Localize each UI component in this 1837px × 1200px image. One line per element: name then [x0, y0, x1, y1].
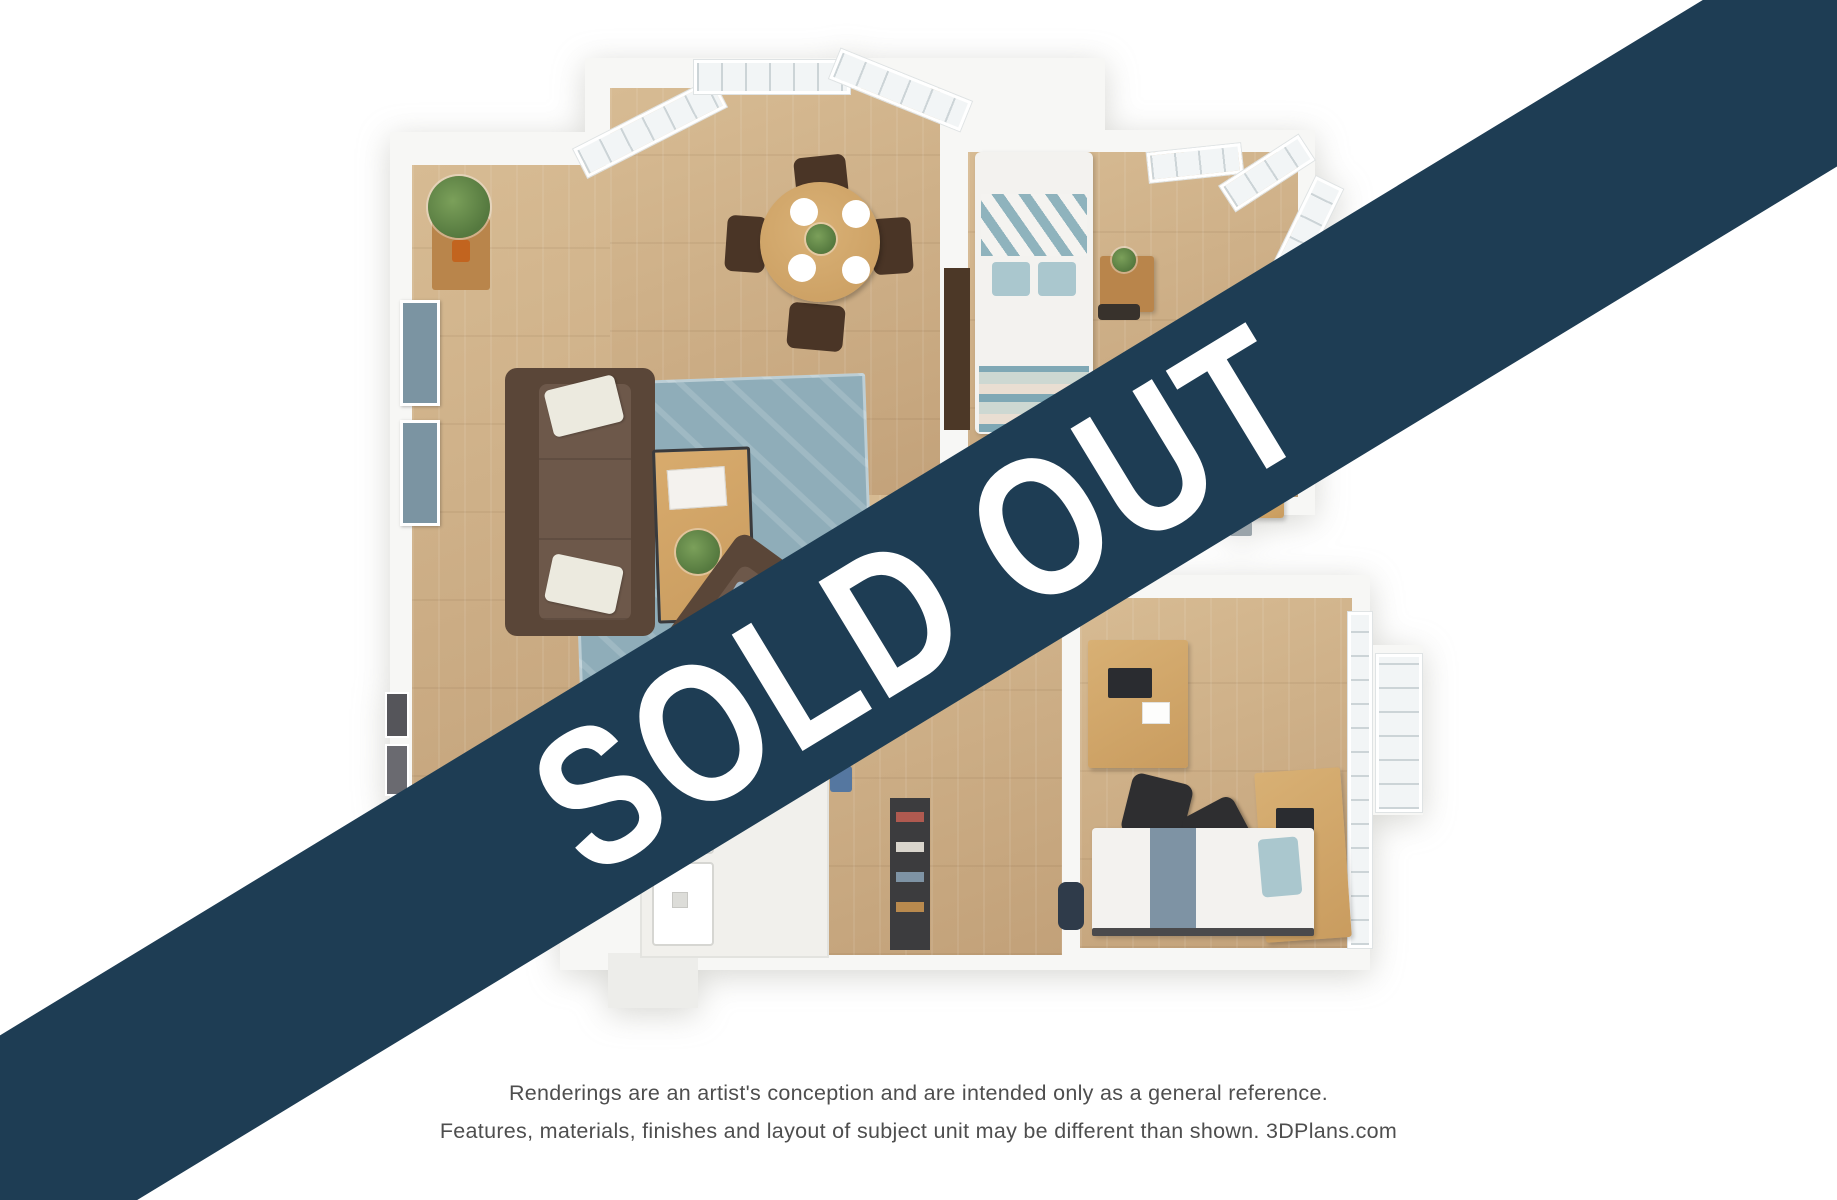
plate-icon-1	[790, 198, 818, 226]
bed1-chevron-pillows	[981, 194, 1087, 256]
robot-vacuum-icon	[1058, 882, 1084, 930]
desk1-paper	[1142, 702, 1170, 724]
closet-item-red	[896, 812, 924, 822]
wall-art-upper	[400, 300, 440, 406]
bed2-blanket-stripe	[1150, 828, 1196, 936]
plate-icon-3	[788, 254, 816, 282]
plate-icon-2	[842, 200, 870, 228]
bed2-pillow	[1258, 836, 1303, 897]
small-frame-a	[385, 692, 409, 738]
window-dining-top	[694, 60, 850, 94]
wall-art-lower	[400, 420, 440, 526]
closet-item-blue	[896, 872, 924, 882]
bed1-accent-pillow-b	[1038, 262, 1076, 296]
dining-chair-south	[786, 302, 846, 353]
bedroom1-chair	[1098, 304, 1140, 320]
centerpiece-plant-icon	[806, 224, 836, 254]
window-office-bay	[1376, 654, 1422, 812]
shower-drain-icon	[672, 892, 688, 908]
bed1-accent-pillow-a	[992, 262, 1030, 296]
wardrobe	[944, 268, 970, 430]
coffee-table-tray	[667, 466, 728, 510]
plate-icon-4	[842, 256, 870, 284]
closet-item-tan	[896, 902, 924, 912]
bed2-frame-edge	[1092, 928, 1314, 936]
disclaimer-line-2: Features, materials, finishes and layout…	[0, 1120, 1837, 1143]
decor-orange	[452, 240, 470, 262]
closet-item-white	[896, 842, 924, 852]
window-office-right	[1348, 612, 1372, 948]
desk-1	[1088, 640, 1188, 768]
nightstand-plant-icon	[1112, 248, 1136, 272]
sold-out-floorplan-card: SOLD OUT Renderings are an artist's conc…	[0, 0, 1837, 1200]
laptop-icon-1	[1108, 668, 1152, 698]
potted-plant-icon	[428, 176, 490, 238]
entry-step	[608, 953, 698, 1008]
